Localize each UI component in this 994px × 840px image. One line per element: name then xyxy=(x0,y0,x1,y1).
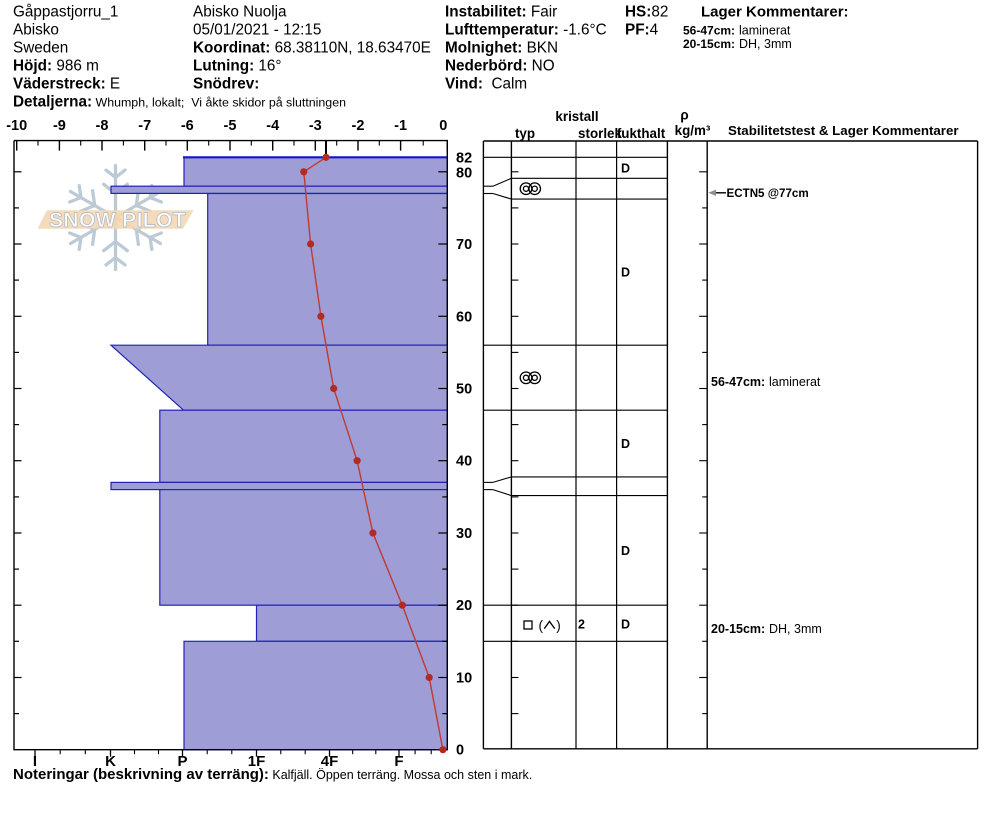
svg-text:70: 70 xyxy=(456,237,472,253)
svg-text:Snödrev:: Snödrev: xyxy=(193,75,259,92)
svg-text:Lutning: 16°: Lutning: 16° xyxy=(193,57,282,74)
svg-text:PF:4: PF:4 xyxy=(625,21,659,38)
svg-text:(: ( xyxy=(539,618,544,633)
svg-text:D: D xyxy=(621,437,630,451)
svg-text:fukthalt: fukthalt xyxy=(617,126,666,141)
svg-text:SNOW PILOT: SNOW PILOT xyxy=(49,209,186,232)
svg-text:ECTN5 @77cm: ECTN5 @77cm xyxy=(727,187,809,200)
svg-text:05/01/2021 - 12:15: 05/01/2021 - 12:15 xyxy=(193,21,321,38)
svg-text:D: D xyxy=(621,266,630,280)
svg-text:kristall: kristall xyxy=(555,109,598,124)
svg-text:Vind: Calm: Vind: Calm xyxy=(445,75,527,92)
svg-text:D: D xyxy=(621,618,630,632)
svg-text:Abisko: Abisko xyxy=(13,21,59,38)
svg-text:Lager Kommentarer:: Lager Kommentarer: xyxy=(701,3,849,20)
svg-text:Molnighet: BKN: Molnighet: BKN xyxy=(445,39,558,56)
svg-text:HS:82: HS:82 xyxy=(625,3,668,20)
svg-text:60: 60 xyxy=(456,309,472,325)
svg-text:-5: -5 xyxy=(224,118,237,134)
svg-text:Nederbörd: NO: Nederbörd: NO xyxy=(445,57,555,74)
svg-text:-8: -8 xyxy=(96,118,109,134)
svg-text:laminerat: laminerat xyxy=(769,375,821,389)
svg-text:40: 40 xyxy=(456,454,472,470)
svg-text:2: 2 xyxy=(578,618,585,632)
svg-text:typ: typ xyxy=(515,126,535,141)
svg-text:Höjd: 986 m: Höjd: 986 m xyxy=(13,57,99,74)
svg-text:Gåppastjorru_1: Gåppastjorru_1 xyxy=(13,3,118,20)
svg-text:80: 80 xyxy=(456,165,472,181)
svg-text:Abisko Nuolja: Abisko Nuolja xyxy=(193,3,287,20)
svg-text:laminerat: laminerat xyxy=(739,24,791,38)
svg-text:-6: -6 xyxy=(181,118,194,134)
svg-text:Detaljerna: Whumph, lokalt; V: Detaljerna: Whumph, lokalt; Vi åkte skid… xyxy=(13,93,346,110)
svg-text:Koordinat: 68.38110N, 18.63470: Koordinat: 68.38110N, 18.63470E xyxy=(193,39,431,56)
svg-text:-3: -3 xyxy=(309,118,322,134)
svg-text:0: 0 xyxy=(456,743,464,759)
svg-text:-1: -1 xyxy=(394,118,407,134)
svg-text:-7: -7 xyxy=(138,118,151,134)
svg-text:): ) xyxy=(556,618,561,633)
svg-text:-9: -9 xyxy=(53,118,66,134)
svg-text:Väderstreck: E: Väderstreck: E xyxy=(13,75,120,92)
svg-text:20: 20 xyxy=(456,598,472,614)
svg-text:82: 82 xyxy=(456,150,472,166)
svg-text:56-47cm:: 56-47cm: xyxy=(683,24,735,38)
svg-text:D: D xyxy=(621,162,630,176)
svg-text:-10: -10 xyxy=(6,118,27,134)
svg-text:ρ: ρ xyxy=(680,108,688,123)
svg-text:Sweden: Sweden xyxy=(13,39,68,56)
svg-text:50: 50 xyxy=(456,382,472,398)
svg-text:0: 0 xyxy=(439,118,447,134)
svg-text:10: 10 xyxy=(456,671,472,687)
svg-text:DH, 3mm: DH, 3mm xyxy=(769,622,822,636)
svg-text:-4: -4 xyxy=(266,118,279,134)
svg-text:-2: -2 xyxy=(352,118,365,134)
svg-text:20-15cm:: 20-15cm: xyxy=(711,622,765,636)
svg-text:DH, 3mm: DH, 3mm xyxy=(739,37,792,51)
svg-text:56-47cm:: 56-47cm: xyxy=(711,375,765,389)
svg-text:kg/m³: kg/m³ xyxy=(675,123,711,138)
svg-text:Lufttemperatur: -1.6°C: Lufttemperatur: -1.6°C xyxy=(445,21,607,38)
svg-text:20-15cm:: 20-15cm: xyxy=(683,37,735,51)
svg-text:Noteringar (beskrivning av ter: Noteringar (beskrivning av terräng): Kal… xyxy=(13,766,532,783)
svg-text:30: 30 xyxy=(456,526,472,542)
svg-text:Stabilitetstest & Lager Kommen: Stabilitetstest & Lager Kommentarer xyxy=(728,123,959,138)
svg-text:D: D xyxy=(621,544,630,558)
svg-text:Instabilitet: Fair: Instabilitet: Fair xyxy=(445,3,557,20)
